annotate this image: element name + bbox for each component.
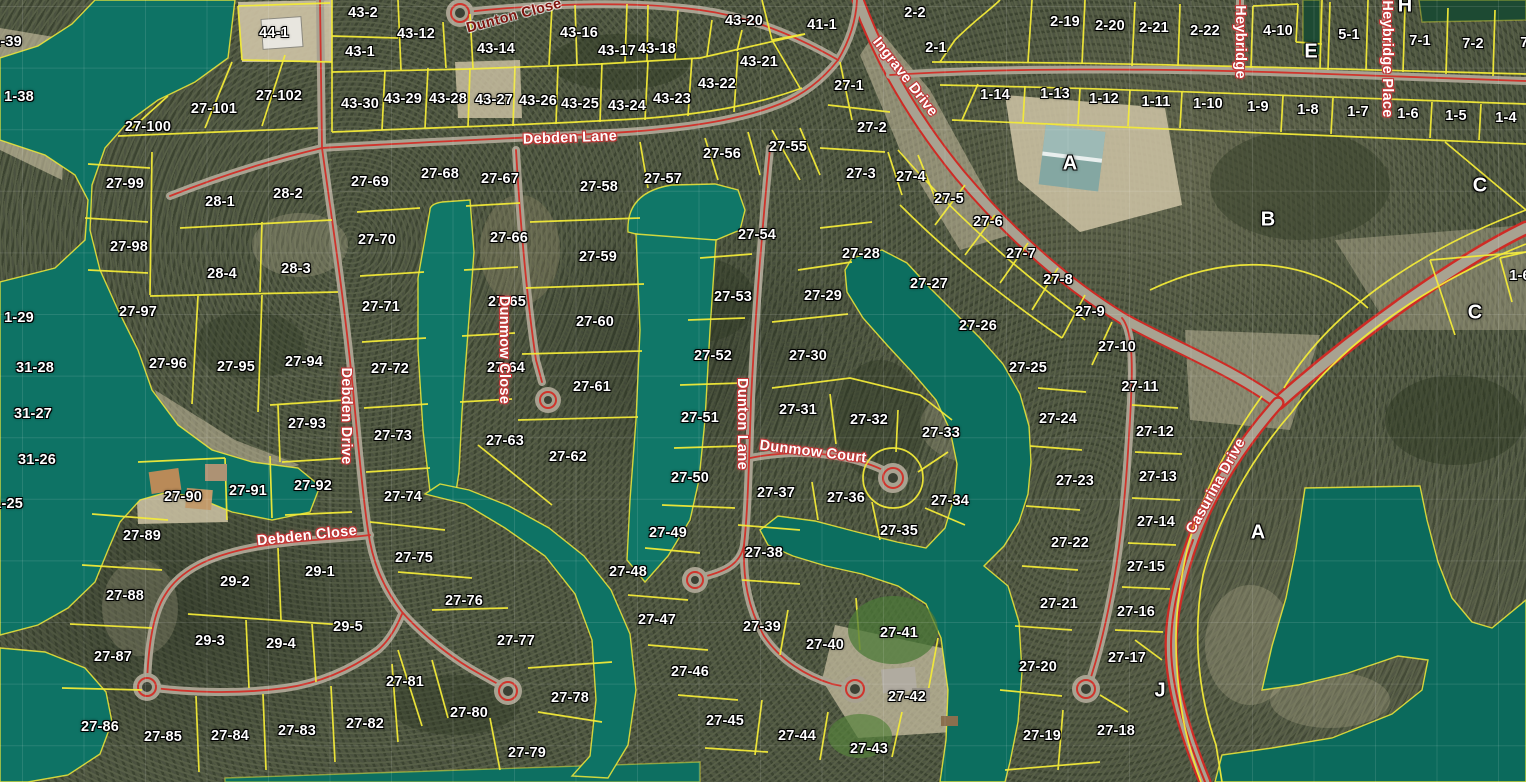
street-label: Debden Close <box>256 523 357 549</box>
parcel-label: 2-2 <box>904 5 926 21</box>
street-label: Dunton Close <box>465 0 564 36</box>
parcel-label: 27-69 <box>351 174 389 190</box>
parcel-label: 27-73 <box>374 428 412 444</box>
parcel-label: 43-12 <box>397 26 435 42</box>
parcel-label: 7-1 <box>1409 33 1431 49</box>
parcel-label: 43-17 <box>598 43 636 59</box>
parcel-label: 1-8 <box>1297 102 1319 118</box>
parcel-label: 1-39 <box>0 34 22 50</box>
parcel-label: 27-31 <box>779 402 817 418</box>
street-label: Dunton Lane <box>734 378 750 470</box>
parcel-label: 27-15 <box>1127 559 1165 575</box>
parcel-label: 43-1 <box>345 44 375 60</box>
parcel-label: 27-12 <box>1136 424 1174 440</box>
parcel-label: 27-89 <box>123 528 161 544</box>
parcel-label: 27-76 <box>445 593 483 609</box>
parcel-label: 27-100 <box>125 119 171 135</box>
parcel-label: 27-38 <box>745 545 783 561</box>
parcel-label: 27-75 <box>395 550 433 566</box>
parcel-label: 27-17 <box>1108 650 1146 666</box>
parcel-label: 27-61 <box>573 379 611 395</box>
parcel-label: 27-11 <box>1121 379 1158 395</box>
parcel-label: 27-19 <box>1023 728 1061 744</box>
parcel-label: 1-10 <box>1193 96 1223 112</box>
parcel-label: 2-19 <box>1050 14 1080 30</box>
parcel-label: 27-44 <box>778 728 816 744</box>
parcel-label: 29-1 <box>305 564 335 580</box>
parcel-label: 27-18 <box>1097 723 1135 739</box>
parcel-label: 31-25 <box>0 496 23 512</box>
parcel-label: 27-63 <box>486 433 524 449</box>
parcel-label: 27-23 <box>1056 473 1094 489</box>
parcel-label: 27-57 <box>644 171 682 187</box>
street-label: Dunmow Court <box>759 438 868 467</box>
label-layer: 1-391-381-2931-2831-2731-2631-2544-143-2… <box>0 0 1526 782</box>
parcel-label: 27-71 <box>362 299 400 315</box>
parcel-label: 27-8 <box>1043 272 1073 288</box>
parcel-label: 27-9 <box>1075 304 1105 320</box>
parcel-label: 27-81 <box>386 674 424 690</box>
parcel-label: 31-26 <box>18 452 56 468</box>
parcel-label: 1-11 <box>1141 94 1170 110</box>
parcel-label: 43-27 <box>475 92 513 108</box>
parcel-label: 2-20 <box>1095 18 1125 34</box>
street-label: Debden Drive <box>338 367 354 464</box>
parcel-label: 27-99 <box>106 176 144 192</box>
section-label: J <box>1154 680 1165 703</box>
parcel-label: 27-26 <box>959 318 997 334</box>
parcel-label: 27-53 <box>714 289 752 305</box>
parcel-label: 43-30 <box>341 96 379 112</box>
parcel-label: 43-24 <box>608 98 646 114</box>
parcel-label: 41-1 <box>807 17 837 33</box>
parcel-label: 28-4 <box>207 266 237 282</box>
parcel-label: 27-92 <box>294 478 332 494</box>
parcel-label: 43-26 <box>519 93 557 109</box>
parcel-label: 1-29 <box>4 310 34 326</box>
parcel-label: 27-86 <box>81 719 119 735</box>
parcel-label: 27-34 <box>931 493 969 509</box>
parcel-label: 27-32 <box>850 412 888 428</box>
parcel-label: 31-28 <box>16 360 54 376</box>
parcel-label: 27-87 <box>94 649 132 665</box>
parcel-label: 27-14 <box>1137 514 1175 530</box>
parcel-label: 27-88 <box>106 588 144 604</box>
section-label: C <box>1468 302 1482 325</box>
parcel-label: 2-21 <box>1139 20 1169 36</box>
parcel-label: 27-78 <box>551 690 589 706</box>
parcel-label: 27-65 <box>488 294 526 310</box>
parcel-label: 27-54 <box>738 227 776 243</box>
parcel-label: 27-27 <box>910 276 948 292</box>
parcel-label: 27-52 <box>694 348 732 364</box>
parcel-label: 1-14 <box>980 87 1010 103</box>
parcel-label: 1-7 <box>1347 104 1369 120</box>
parcel-label: 43-20 <box>725 13 763 29</box>
parcel-label: 27-29 <box>804 288 842 304</box>
parcel-label: 7-3 <box>1520 35 1526 51</box>
parcel-label: 43-21 <box>740 54 778 70</box>
parcel-label: 27-24 <box>1039 411 1077 427</box>
parcel-label: 27-70 <box>358 232 396 248</box>
map-canvas[interactable]: 1-391-381-2931-2831-2731-2631-2544-143-2… <box>0 0 1526 782</box>
street-label: Ingrave Drive <box>869 34 941 119</box>
parcel-label: 27-13 <box>1139 469 1177 485</box>
parcel-label: 27-91 <box>229 483 267 499</box>
parcel-label: 27-22 <box>1051 535 1089 551</box>
parcel-label: 27-1 <box>834 78 864 94</box>
parcel-label: 1-6 <box>1397 106 1419 122</box>
parcel-label: 4-10 <box>1263 23 1293 39</box>
parcel-label: 31-27 <box>14 406 52 422</box>
parcel-label: 43-25 <box>561 96 599 112</box>
parcel-label: 28-2 <box>273 186 303 202</box>
section-label: A <box>1063 153 1077 176</box>
parcel-label: 27-43 <box>850 741 888 757</box>
parcel-label: 27-95 <box>217 359 255 375</box>
parcel-label: 27-40 <box>806 637 844 653</box>
parcel-label: 27-77 <box>497 633 535 649</box>
parcel-label: 27-46 <box>671 664 709 680</box>
parcel-label: 43-14 <box>477 41 515 57</box>
street-label: Heybridge <box>1232 5 1248 79</box>
parcel-label: 27-59 <box>579 249 617 265</box>
street-label: Heybridge Place <box>1379 0 1395 117</box>
parcel-label: 27-79 <box>508 745 546 761</box>
parcel-label: 27-82 <box>346 716 384 732</box>
parcel-label: 27-83 <box>278 723 316 739</box>
street-label: Casurina Drive <box>1183 436 1249 537</box>
parcel-label: 1-12 <box>1089 91 1119 107</box>
parcel-label: 1-4 <box>1495 110 1517 126</box>
parcel-label: 43-29 <box>384 91 422 107</box>
parcel-label: 27-41 <box>880 625 918 641</box>
parcel-label: 27-72 <box>371 361 409 377</box>
parcel-label: 5-1 <box>1338 27 1360 43</box>
parcel-label: 27-85 <box>144 729 182 745</box>
parcel-label: 27-62 <box>549 449 587 465</box>
parcel-label: 27-21 <box>1040 596 1078 612</box>
parcel-label: 27-16 <box>1117 604 1155 620</box>
parcel-label: 28-1 <box>205 194 235 210</box>
parcel-label: 1-5 <box>1445 108 1467 124</box>
parcel-label: 43-28 <box>429 91 467 107</box>
parcel-label: 27-3 <box>846 166 876 182</box>
parcel-label: 29-5 <box>333 619 363 635</box>
parcel-label: 27-58 <box>580 179 618 195</box>
parcel-label: 43-16 <box>560 25 598 41</box>
parcel-label: 27-49 <box>649 525 687 541</box>
parcel-label: 27-28 <box>842 246 880 262</box>
street-label: Dunmow Close <box>496 296 512 404</box>
parcel-label: 27-7 <box>1006 246 1036 262</box>
parcel-label: 29-4 <box>266 636 296 652</box>
parcel-label: 28-3 <box>281 261 311 277</box>
parcel-label: 27-30 <box>789 348 827 364</box>
parcel-label: 27-25 <box>1009 360 1047 376</box>
section-label: C <box>1473 175 1487 198</box>
parcel-label: 27-37 <box>757 485 795 501</box>
parcel-label: 27-51 <box>681 410 719 426</box>
parcel-label: 27-84 <box>211 728 249 744</box>
parcel-label: 27-68 <box>421 166 459 182</box>
parcel-label: 1-13 <box>1040 86 1070 102</box>
parcel-label: 27-39 <box>743 619 781 635</box>
parcel-label: 27-90 <box>164 489 202 505</box>
parcel-label: 27-35 <box>880 523 918 539</box>
parcel-label: 27-98 <box>110 239 148 255</box>
parcel-label: 27-20 <box>1019 659 1057 675</box>
parcel-label: 27-66 <box>490 230 528 246</box>
parcel-label: 1-38 <box>4 89 34 105</box>
parcel-label: 1-9 <box>1247 99 1269 115</box>
parcel-label: 27-36 <box>827 490 865 506</box>
parcel-label: 27-50 <box>671 470 709 486</box>
parcel-label: 27-10 <box>1098 339 1136 355</box>
parcel-label: 27-101 <box>191 101 237 117</box>
parcel-label: 27-67 <box>481 171 519 187</box>
parcel-label: 27-60 <box>576 314 614 330</box>
parcel-label: 27-64 <box>487 360 525 376</box>
parcel-label: 27-93 <box>288 416 326 432</box>
section-label: H <box>1398 0 1412 18</box>
parcel-label: 27-42 <box>888 689 926 705</box>
parcel-label: 27-45 <box>706 713 744 729</box>
parcel-label: 27-33 <box>922 425 960 441</box>
parcel-label: 1-6 <box>1509 268 1526 284</box>
parcel-label: 27-56 <box>703 146 741 162</box>
parcel-label: 27-2 <box>857 120 887 136</box>
parcel-label: 27-96 <box>149 356 187 372</box>
parcel-label: 27-80 <box>450 705 488 721</box>
parcel-label: 27-94 <box>285 354 323 370</box>
parcel-label: 27-55 <box>769 139 807 155</box>
parcel-label: 43-2 <box>348 5 378 21</box>
parcel-label: 43-22 <box>698 76 736 92</box>
section-label: E <box>1304 41 1317 64</box>
parcel-label: 27-102 <box>256 88 302 104</box>
street-label: Debden Lane <box>523 128 618 147</box>
parcel-label: 27-47 <box>638 612 676 628</box>
parcel-label: 43-18 <box>638 41 676 57</box>
parcel-label: 27-4 <box>896 169 926 185</box>
parcel-label: 44-1 <box>259 25 289 41</box>
section-label: A <box>1251 522 1265 545</box>
parcel-label: 43-23 <box>653 91 691 107</box>
section-label: B <box>1261 209 1275 232</box>
parcel-label: 27-74 <box>384 489 422 505</box>
parcel-label: 2-22 <box>1190 23 1220 39</box>
parcel-label: 27-6 <box>973 214 1003 230</box>
parcel-label: 29-2 <box>220 574 250 590</box>
parcel-label: 27-97 <box>119 304 157 320</box>
parcel-label: 29-3 <box>195 633 225 649</box>
parcel-label: 27-5 <box>934 191 964 207</box>
parcel-label: 7-2 <box>1462 36 1484 52</box>
parcel-label: 27-48 <box>609 564 647 580</box>
parcel-label: 2-1 <box>925 40 947 56</box>
